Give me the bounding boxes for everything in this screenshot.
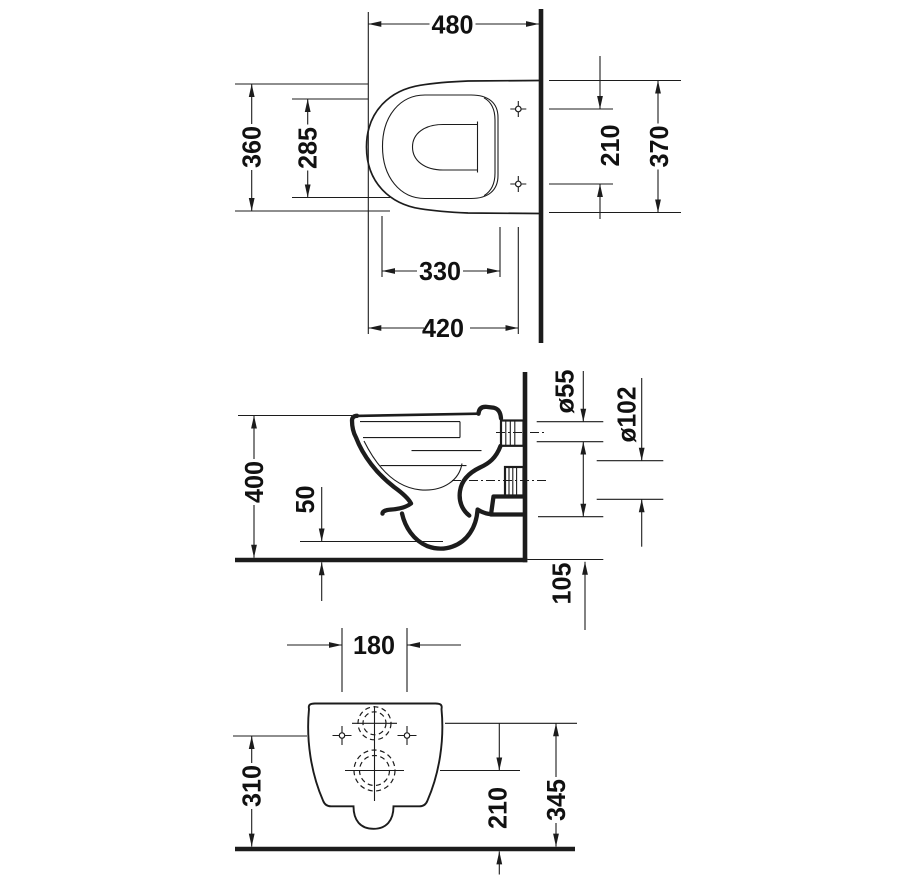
- bowl-opening: [413, 125, 478, 171]
- dim-480-label: 480: [432, 10, 474, 40]
- outlet-spigot: [505, 467, 524, 497]
- flush-inlet-housing: [479, 407, 502, 419]
- flush-inlet-spigot: [501, 421, 524, 446]
- dim-210-rear-label: 210: [483, 787, 513, 829]
- dim-285-label: 285: [293, 127, 323, 169]
- outlet-foot: [491, 497, 524, 515]
- dim-360-label: 360: [237, 126, 267, 168]
- toilet-side-profile: [352, 407, 524, 549]
- toilet-plan-outline: [367, 81, 540, 214]
- fixing-hole-plan-bottom: [510, 176, 526, 192]
- toilet-technical-drawing: 480 360 285 210 370 330 420: [0, 0, 911, 875]
- dim-370-label: 370: [644, 126, 674, 168]
- dim-50-label: 50: [290, 486, 320, 514]
- dim-400-label: 400: [239, 461, 269, 503]
- toilet-rear-outline: [308, 704, 442, 829]
- dim-310-label: 310: [237, 765, 267, 807]
- dim-180-label: 180: [353, 630, 395, 660]
- seat-edge-arc: [484, 98, 495, 196]
- fixing-hole-rear-left: [333, 726, 352, 745]
- side-view: 400 50 ø55 ø102 105: [235, 370, 663, 631]
- dim-105-label: 105: [547, 563, 577, 605]
- dim-330-label: 330: [419, 256, 461, 286]
- fixing-hole-plan-top: [510, 101, 526, 117]
- rear-extension-lines: [233, 628, 577, 771]
- rear-view: 180 310 210 345: [233, 628, 577, 875]
- fixing-hole-rear-right: [398, 726, 417, 745]
- technical-drawing-page: 480 360 285 210 370 330 420: [0, 0, 911, 875]
- dim-210-plan-label: 210: [595, 125, 625, 167]
- dim-dia102-label: ø102: [612, 387, 642, 443]
- dim-dia55-label: ø55: [550, 370, 580, 414]
- plan-view: 480 360 285 210 370 330 420: [235, 9, 681, 343]
- dim-345-label: 345: [541, 779, 571, 821]
- dim-420-label: 420: [422, 313, 464, 343]
